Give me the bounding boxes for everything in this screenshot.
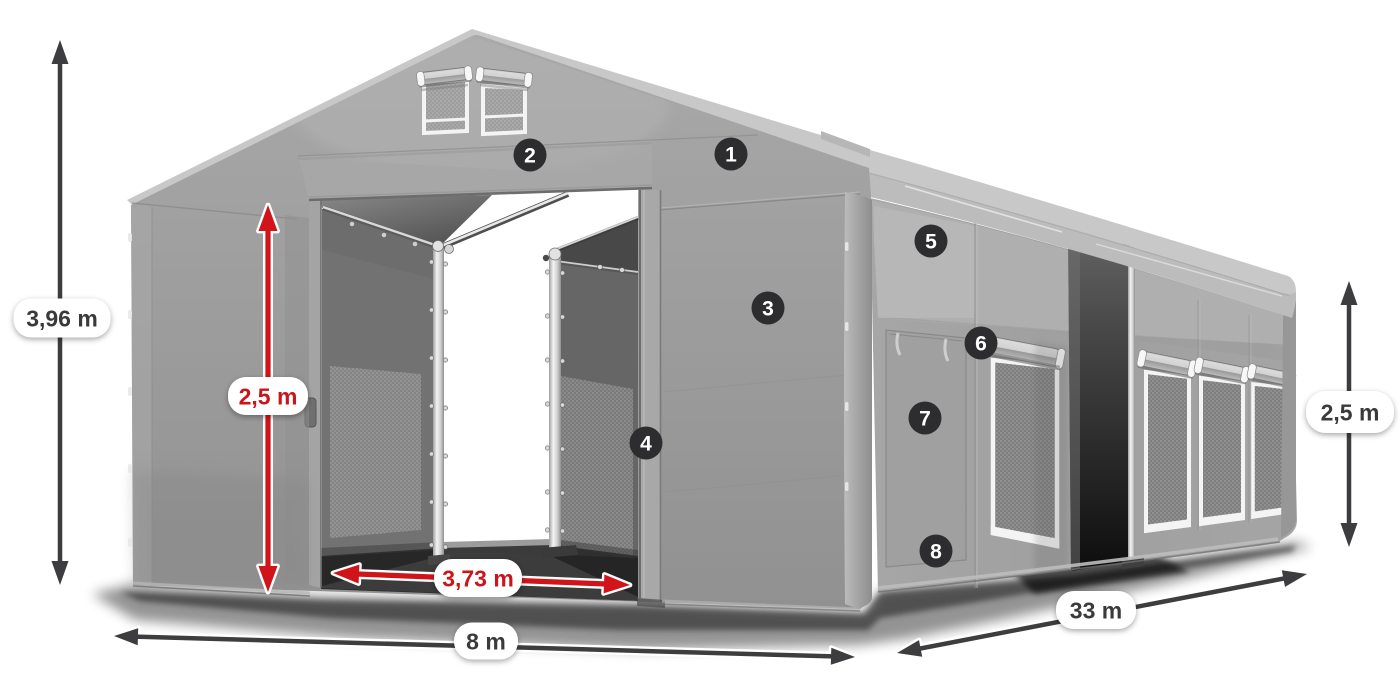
svg-text:1: 1 — [725, 144, 737, 167]
svg-text:3,73 m: 3,73 m — [442, 565, 514, 591]
svg-text:3,96 m: 3,96 m — [26, 305, 98, 331]
svg-text:2,5 m: 2,5 m — [1321, 399, 1380, 425]
svg-text:2,5 m: 2,5 m — [239, 383, 298, 409]
svg-text:8: 8 — [930, 541, 942, 564]
svg-text:8 m: 8 m — [466, 628, 506, 654]
svg-text:7: 7 — [919, 408, 931, 431]
svg-text:33 m: 33 m — [1070, 597, 1122, 623]
svg-text:3: 3 — [762, 298, 774, 321]
svg-text:6: 6 — [975, 333, 987, 356]
svg-text:4: 4 — [640, 433, 652, 456]
svg-text:5: 5 — [925, 231, 937, 254]
svg-text:2: 2 — [524, 145, 536, 168]
